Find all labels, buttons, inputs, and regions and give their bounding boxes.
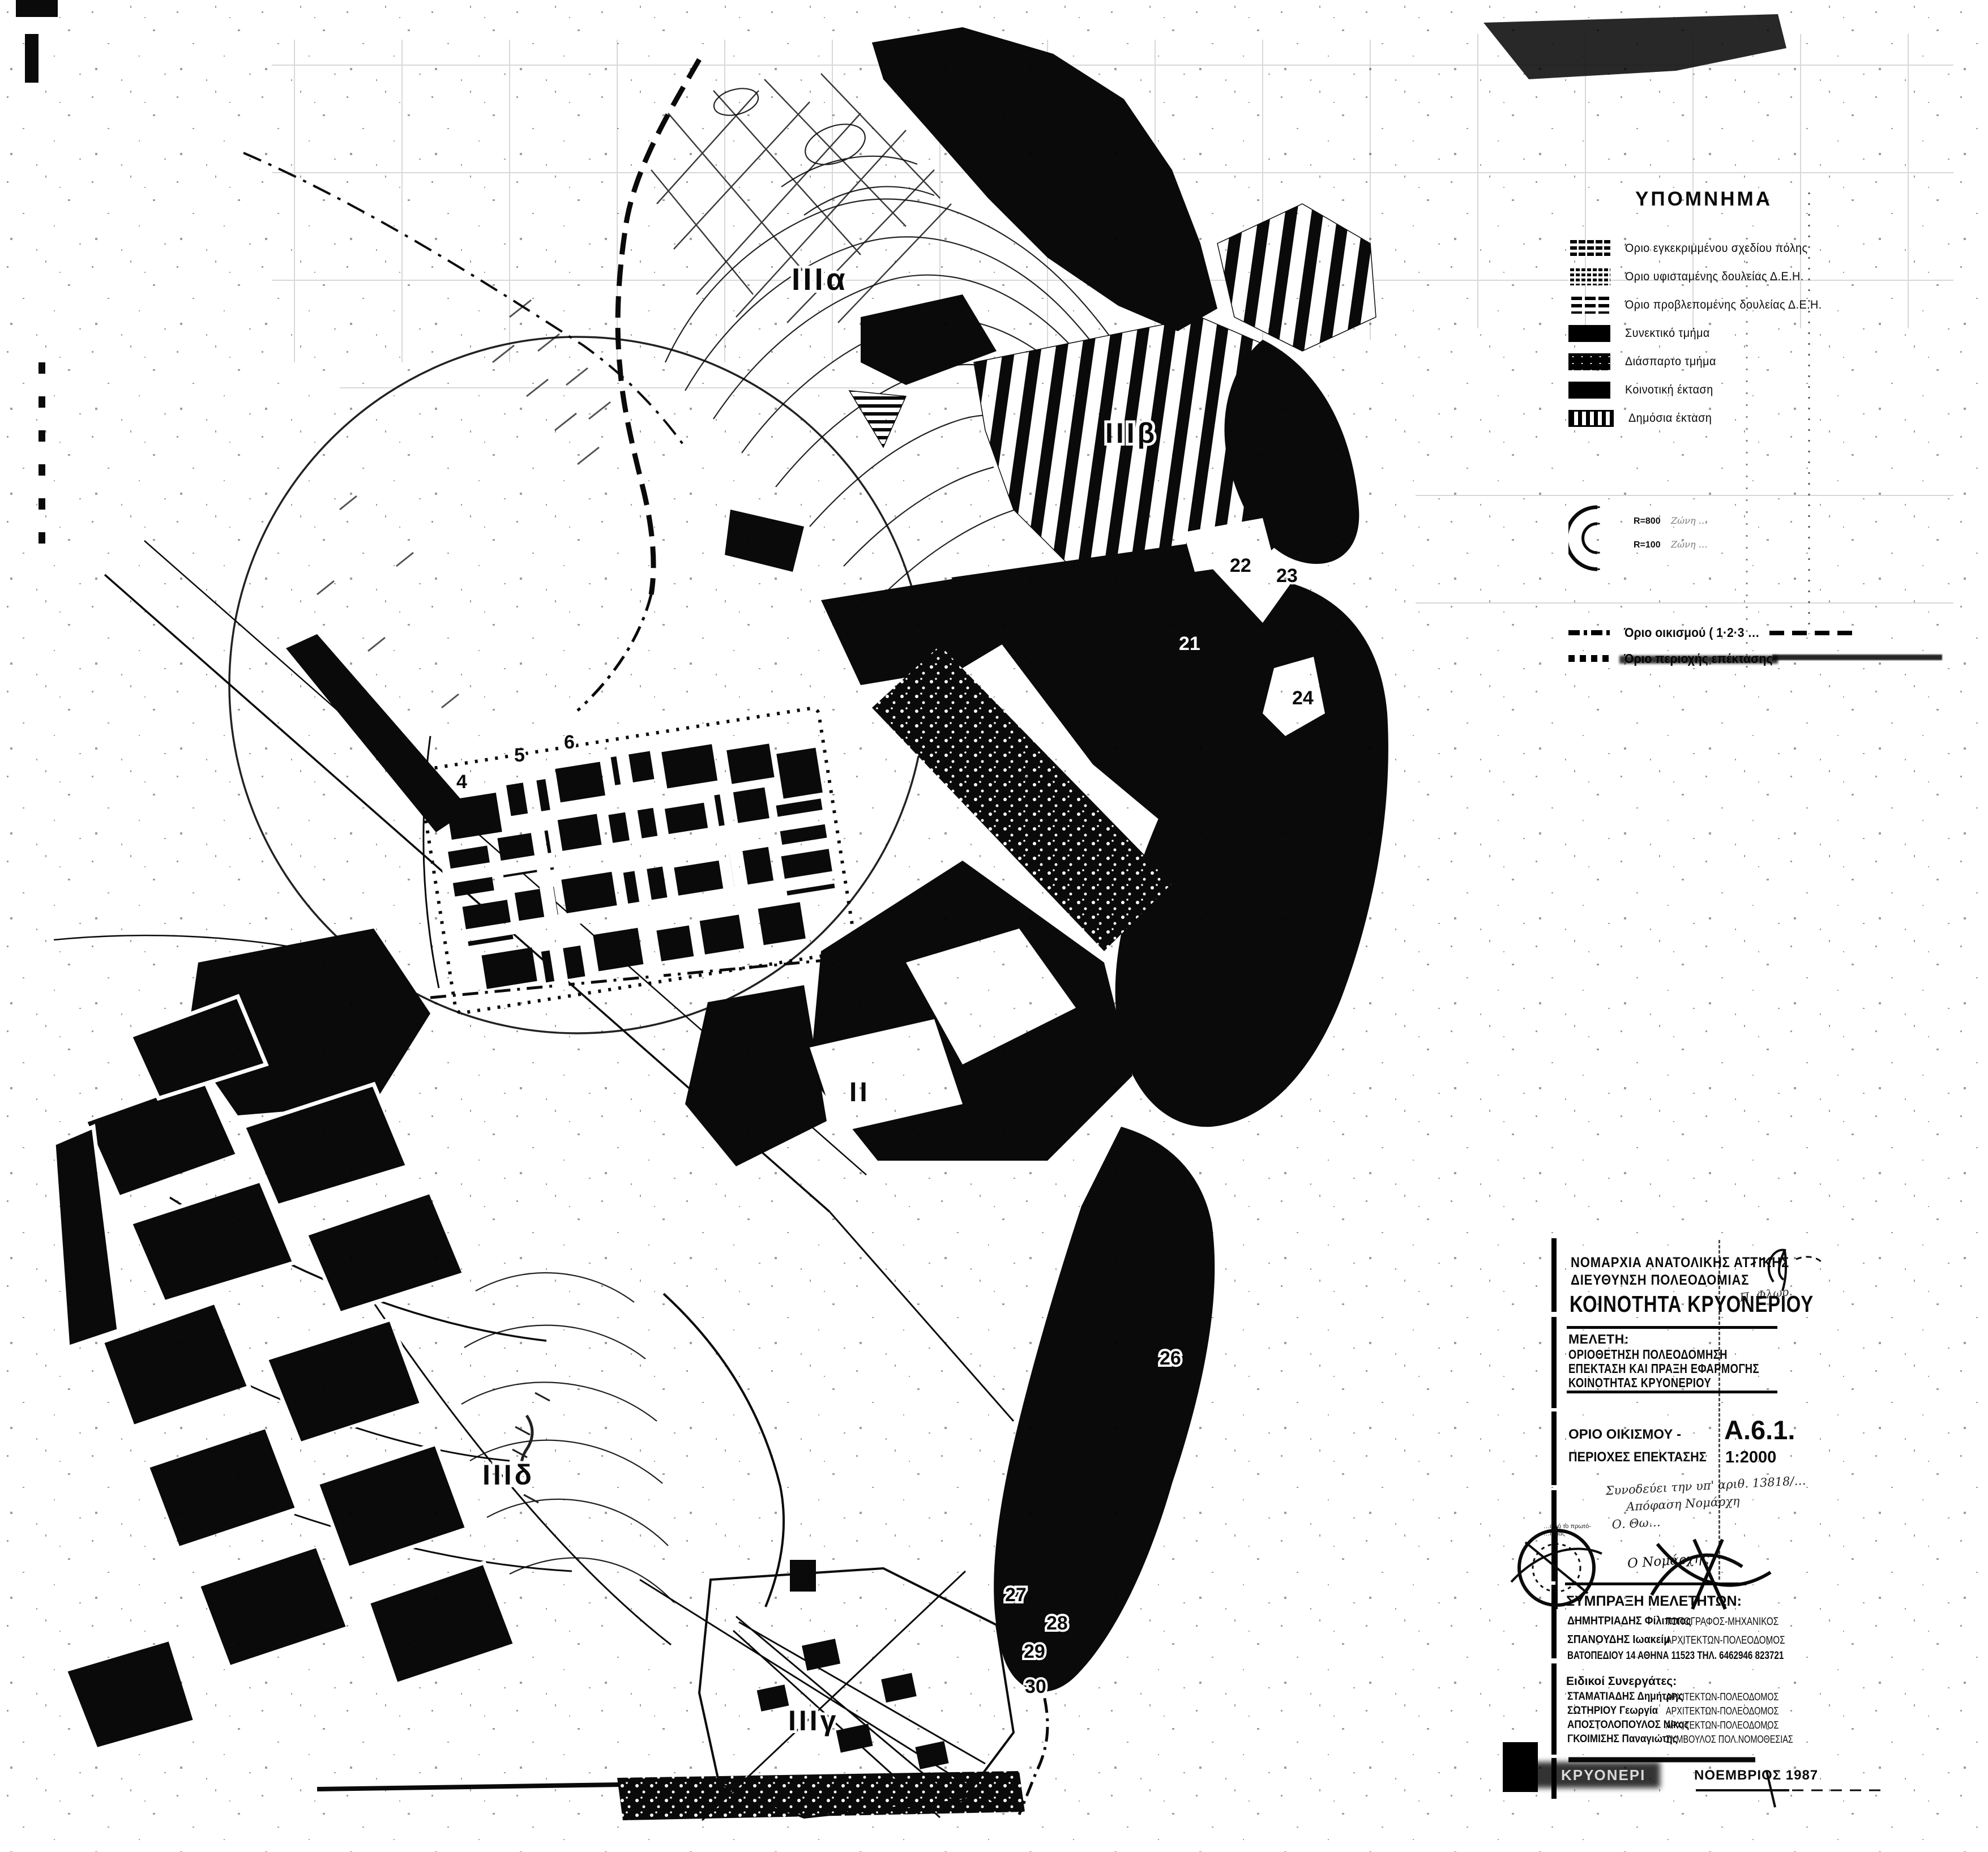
boundary-legend-rows: Όριο οικισμού ( 1·2·3 … Όριο περιοχής επ… (1568, 619, 1987, 671)
corner-ink-blob (1503, 1742, 1538, 1792)
legend-row: Όριο εγκεκριμμένου σχεδίου πόλης (1568, 234, 1987, 263)
approved-plan-boundary-swatch (1568, 240, 1610, 257)
legend-panel: ΥΠΟΜΝΗΜΑ Όριο εγκεκριμμένου σχεδίου πόλη… (1568, 188, 1987, 671)
team-heading: ΣΥΜΠΡΑΞΗ ΜΕΛΕΤΗΤΩΝ: (1566, 1593, 1742, 1610)
scattered-section-swatch (1568, 353, 1610, 370)
legend-title: ΥΠΟΜΝΗΜΑ (1635, 188, 1987, 211)
consultant-name: ΣΠΑΝΟΥΔΗΣ Ιωακείμ (1567, 1633, 1670, 1646)
communal-land-swatch (1568, 382, 1610, 399)
footer-date: ΝΟΕΜΒΡΙΟΣ 1987 (1694, 1768, 1818, 1783)
legend-row: Δημόσια έκταση (1568, 404, 1987, 433)
radius-100-value: R=100 (1634, 540, 1661, 550)
associates-heading: Ειδικοί Συνεργάτες: (1566, 1675, 1677, 1688)
existing-deh-easement-swatch (1568, 268, 1610, 285)
title-block: ΝΟΜΑΡΧΙΑ ΑΝΑΤΟΛΙΚΗΣ ΑΤΤΙΚΗΣ ΔΙΕΥΘΥΝΣΗ ΠΟ… (1553, 1241, 1988, 1810)
study-heading: ΜΕΛΕΤΗ: (1568, 1332, 1629, 1347)
sheet-code: Α.6.1. (1724, 1414, 1795, 1445)
boundary-trail-smear (1772, 655, 1942, 660)
boundary-trail-dashes (1769, 631, 1854, 635)
associate-role: ΑΡΧΙΤΕΚΤΩΝ-ΠΟΛΕΟΔΟΜΟΣ (1666, 1705, 1778, 1717)
legend-label: Διάσπαρτο τμήμα (1625, 355, 1716, 369)
planned-deh-easement-swatch (1568, 297, 1610, 314)
sheet-title-line-1: ΟΡΙΟ ΟΙΚΙΣΜΟΥ - (1568, 1427, 1681, 1443)
overprint-smear (1619, 656, 1778, 664)
office-address: ΒΑΤΟΠΕΔΙΟΥ 14 ΑΘΗΝΑ 11523 ΤΗΛ. 6462946 8… (1567, 1650, 1784, 1662)
stamp-text-line-2: …ησίας (1544, 1530, 1565, 1537)
legend-row: Διάσπαρτο τμήμα (1568, 348, 1987, 376)
rule (1567, 1391, 1777, 1393)
consultant-role: ΑΡΧΙΤΕΚΤΩΝ-ΠΟΛΕΟΔΟΜΟΣ (1666, 1635, 1785, 1647)
extension-boundary-swatch (1568, 655, 1610, 662)
radius-100-row: R=100 Ζώνη … (1634, 539, 1708, 550)
legend-label: Όριο υφισταμένης δουλείας Δ.Ε.Η. (1625, 270, 1804, 284)
settlement-boundary-row: Όριο οικισμού ( 1·2·3 … (1568, 619, 1987, 645)
radius-800-zone: Ζώνη … (1671, 515, 1708, 526)
rule (1565, 1582, 1746, 1585)
legend-row: Συνεκτικό τμήμα (1568, 319, 1987, 348)
compact-section-swatch (1568, 325, 1610, 342)
legend-row: Όριο προβλεπομένης δουλείας Δ.Ε.Η. (1568, 291, 1987, 319)
stamp-text-line-1: …από το πρωτό- (1544, 1523, 1591, 1530)
legend-label: Όριο προβλεπομένης δουλείας Δ.Ε.Η. (1625, 298, 1822, 312)
settlement-boundary-swatch (1568, 630, 1610, 635)
radius-800-value: R=800 (1634, 516, 1661, 526)
extension-boundary-row: Όριο περιοχής επέκτασης (1568, 645, 1987, 671)
rule (1567, 1326, 1777, 1329)
legend-row: Κοινοτική έκταση (1568, 376, 1987, 404)
associate-role: ΣΥΜΒΟΥΛΟΣ ΠΟΛ.ΝΟΜΟΘΕΣΙΑΣ (1666, 1734, 1793, 1746)
study-line-2: ΕΠΕΚΤΑΣΗ ΚΑΙ ΠΡΑΞΗ ΕΦΑΡΜΟΓΗΣ (1568, 1361, 1759, 1376)
stamp-text: …από το πρωτό- …ησίας (1544, 1523, 1634, 1538)
consultant-role: ΤΟΠΟΓΡΑΦΟΣ-ΜΗΧΑΝΙΚΟΣ (1666, 1616, 1778, 1628)
study-line-3: ΚΟΙΝΟΤΗΤΑΣ ΚΡΥΟΝΕΡΙΟΥ (1568, 1375, 1711, 1391)
associate-name: ΓΚΟΙΜΙΣΗΣ Παναγιώτης (1567, 1733, 1678, 1746)
associate-role: ΑΡΧΙΤΕΚΤΩΝ-ΠΟΛΕΟΔΟΜΟΣ (1666, 1691, 1778, 1703)
footer-location: ΚΡΥΟΝΕΡΙ (1561, 1767, 1645, 1784)
handwritten-note: Συνοδεύει την υπ' αριθ. 13818/… Απόφαση … (1605, 1474, 1808, 1532)
agency-line-2: ΔΙΕΥΘΥΝΣΗ ΠΟΛΕΟΔΟΜΙΑΣ (1571, 1272, 1749, 1289)
radius-rings-icon (1568, 499, 1622, 579)
radius-100-zone: Ζώνη … (1671, 539, 1708, 550)
legend-label: Όριο εγκεκριμμένου σχεδίου πόλης (1625, 242, 1807, 255)
public-land-swatch (1568, 410, 1614, 427)
radius-labels: R=800 Ζώνη … R=100 Ζώνη … (1634, 499, 1708, 579)
sheet-title-line-2: ΠΕΡΙΟΧΕΣ ΕΠΕΚΤΑΣΗΣ (1568, 1449, 1707, 1465)
legend-row: Όριο υφισταμένης δουλείας Δ.Ε.Η. (1568, 263, 1987, 291)
legend-label: Δημόσια έκταση (1628, 412, 1712, 425)
associate-name: ΣΩΤΗΡΙΟΥ Γεωργία (1567, 1705, 1658, 1717)
legend-rows: Όριο εγκεκριμμένου σχεδίου πόλης Όριο υφ… (1568, 234, 1987, 433)
scanned-map-sheet: { "page": { "paper_color": "#ffffff", "i… (0, 0, 1988, 1852)
legend-label: Συνεκτικό τμήμα (1625, 327, 1710, 340)
study-line-1: ΟΡΙΟΘΕΤΗΣΗ ΠΟΛΕΟΔΟΜΗΣΗ (1568, 1347, 1728, 1362)
legend-label: Κοινοτική έκταση (1625, 383, 1713, 397)
radius-legend: R=800 Ζώνη … R=100 Ζώνη … (1568, 499, 1987, 579)
associate-role: ΑΡΧΙΤΕΚΤΩΝ-ΠΟΛΕΟΔΟΜΟΣ (1666, 1720, 1778, 1731)
radius-800-row: R=800 Ζώνη … (1634, 515, 1708, 527)
title-block-left-border (1551, 1238, 1557, 1799)
settlement-boundary-label: Όριο οικισμού ( 1·2·3 … (1624, 625, 1760, 640)
sheet-scale: 1:2000 (1725, 1448, 1776, 1467)
